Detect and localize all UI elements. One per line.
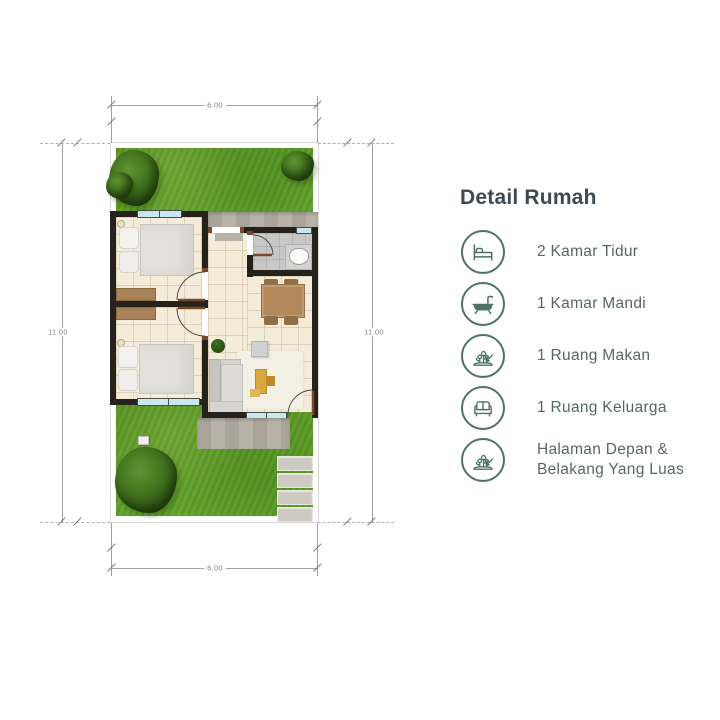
bed-icon (461, 230, 505, 274)
detail-item-label: 1 Kamar Mandi (537, 294, 697, 314)
detail-item-yards: Halaman Depan & Belakang Yang Luas (461, 438, 697, 482)
bed-1-pillow (119, 251, 139, 273)
garden-icon (461, 334, 505, 378)
bedroom-1-window (137, 210, 182, 218)
detail-item-label: 1 Ruang Makan (537, 346, 697, 366)
door-jamb (208, 227, 212, 233)
entry-mat (215, 233, 243, 241)
stepping-stone (277, 473, 313, 488)
stepping-stone (277, 456, 313, 471)
detail-item-living: 1 Ruang Keluarga (461, 386, 697, 430)
garden-bench (138, 436, 149, 445)
dim-height-right: 11.00 (361, 328, 387, 337)
dining-chair (284, 316, 298, 325)
bedroom-2-window (137, 398, 200, 406)
wall (110, 301, 208, 307)
stepping-stone (277, 507, 313, 522)
wall (312, 227, 318, 418)
door-jamb (247, 231, 253, 235)
wall (202, 211, 208, 272)
detail-item-dining: 1 Ruang Makan (461, 334, 697, 378)
wall (202, 336, 208, 418)
terrace (197, 418, 290, 449)
bed-2-pillow (118, 369, 138, 391)
detail-item-bathroom: 1 Kamar Mandi (461, 282, 697, 326)
wall (110, 211, 116, 405)
coffee-table-block (266, 376, 275, 386)
door-jamb (202, 336, 208, 340)
bed-1-mattress (140, 224, 194, 276)
side-table-cube (251, 341, 268, 357)
dim-width-top: 6.00 (204, 101, 226, 110)
detail-item-label: Halaman Depan & Belakang Yang Luas (537, 440, 697, 480)
wall (312, 412, 318, 418)
dining-table (261, 284, 305, 318)
bathroom-window (296, 227, 312, 234)
bed-1-dresser (116, 288, 156, 301)
dim-height-left: 11.00 (45, 328, 71, 337)
dim-width-bottom: 6.00 (204, 564, 226, 573)
side-path (208, 212, 318, 227)
detail-item-bedrooms: 2 Kamar Tidur (461, 230, 697, 274)
bed-2-mattress (139, 344, 194, 394)
bed-2-dresser (116, 307, 156, 320)
stepping-stone (277, 490, 313, 505)
wall (247, 270, 318, 276)
back-yard-tree-small (281, 151, 314, 181)
detail-item-label: 1 Ruang Keluarga (537, 398, 697, 418)
panel-title: Detail Rumah (460, 186, 597, 210)
bathtub-icon (461, 282, 505, 326)
brochure-page: 6.00 6.00 11.00 11.00 Detail Rumah 2 Kam… (0, 0, 720, 720)
bed-2-pillow (118, 346, 138, 368)
front-yard-tree (115, 447, 177, 513)
garden-icon (461, 438, 505, 482)
toilet (289, 248, 309, 265)
door-jamb (202, 268, 208, 272)
potted-plant (211, 339, 225, 353)
coffee-table-block (250, 389, 260, 397)
door-jamb (240, 227, 244, 233)
sofa-icon (461, 386, 505, 430)
back-yard-shrub (106, 172, 133, 199)
dining-chair (264, 316, 278, 325)
bed-1-pillow (119, 227, 139, 249)
detail-item-label: 2 Kamar Tidur (537, 242, 697, 262)
